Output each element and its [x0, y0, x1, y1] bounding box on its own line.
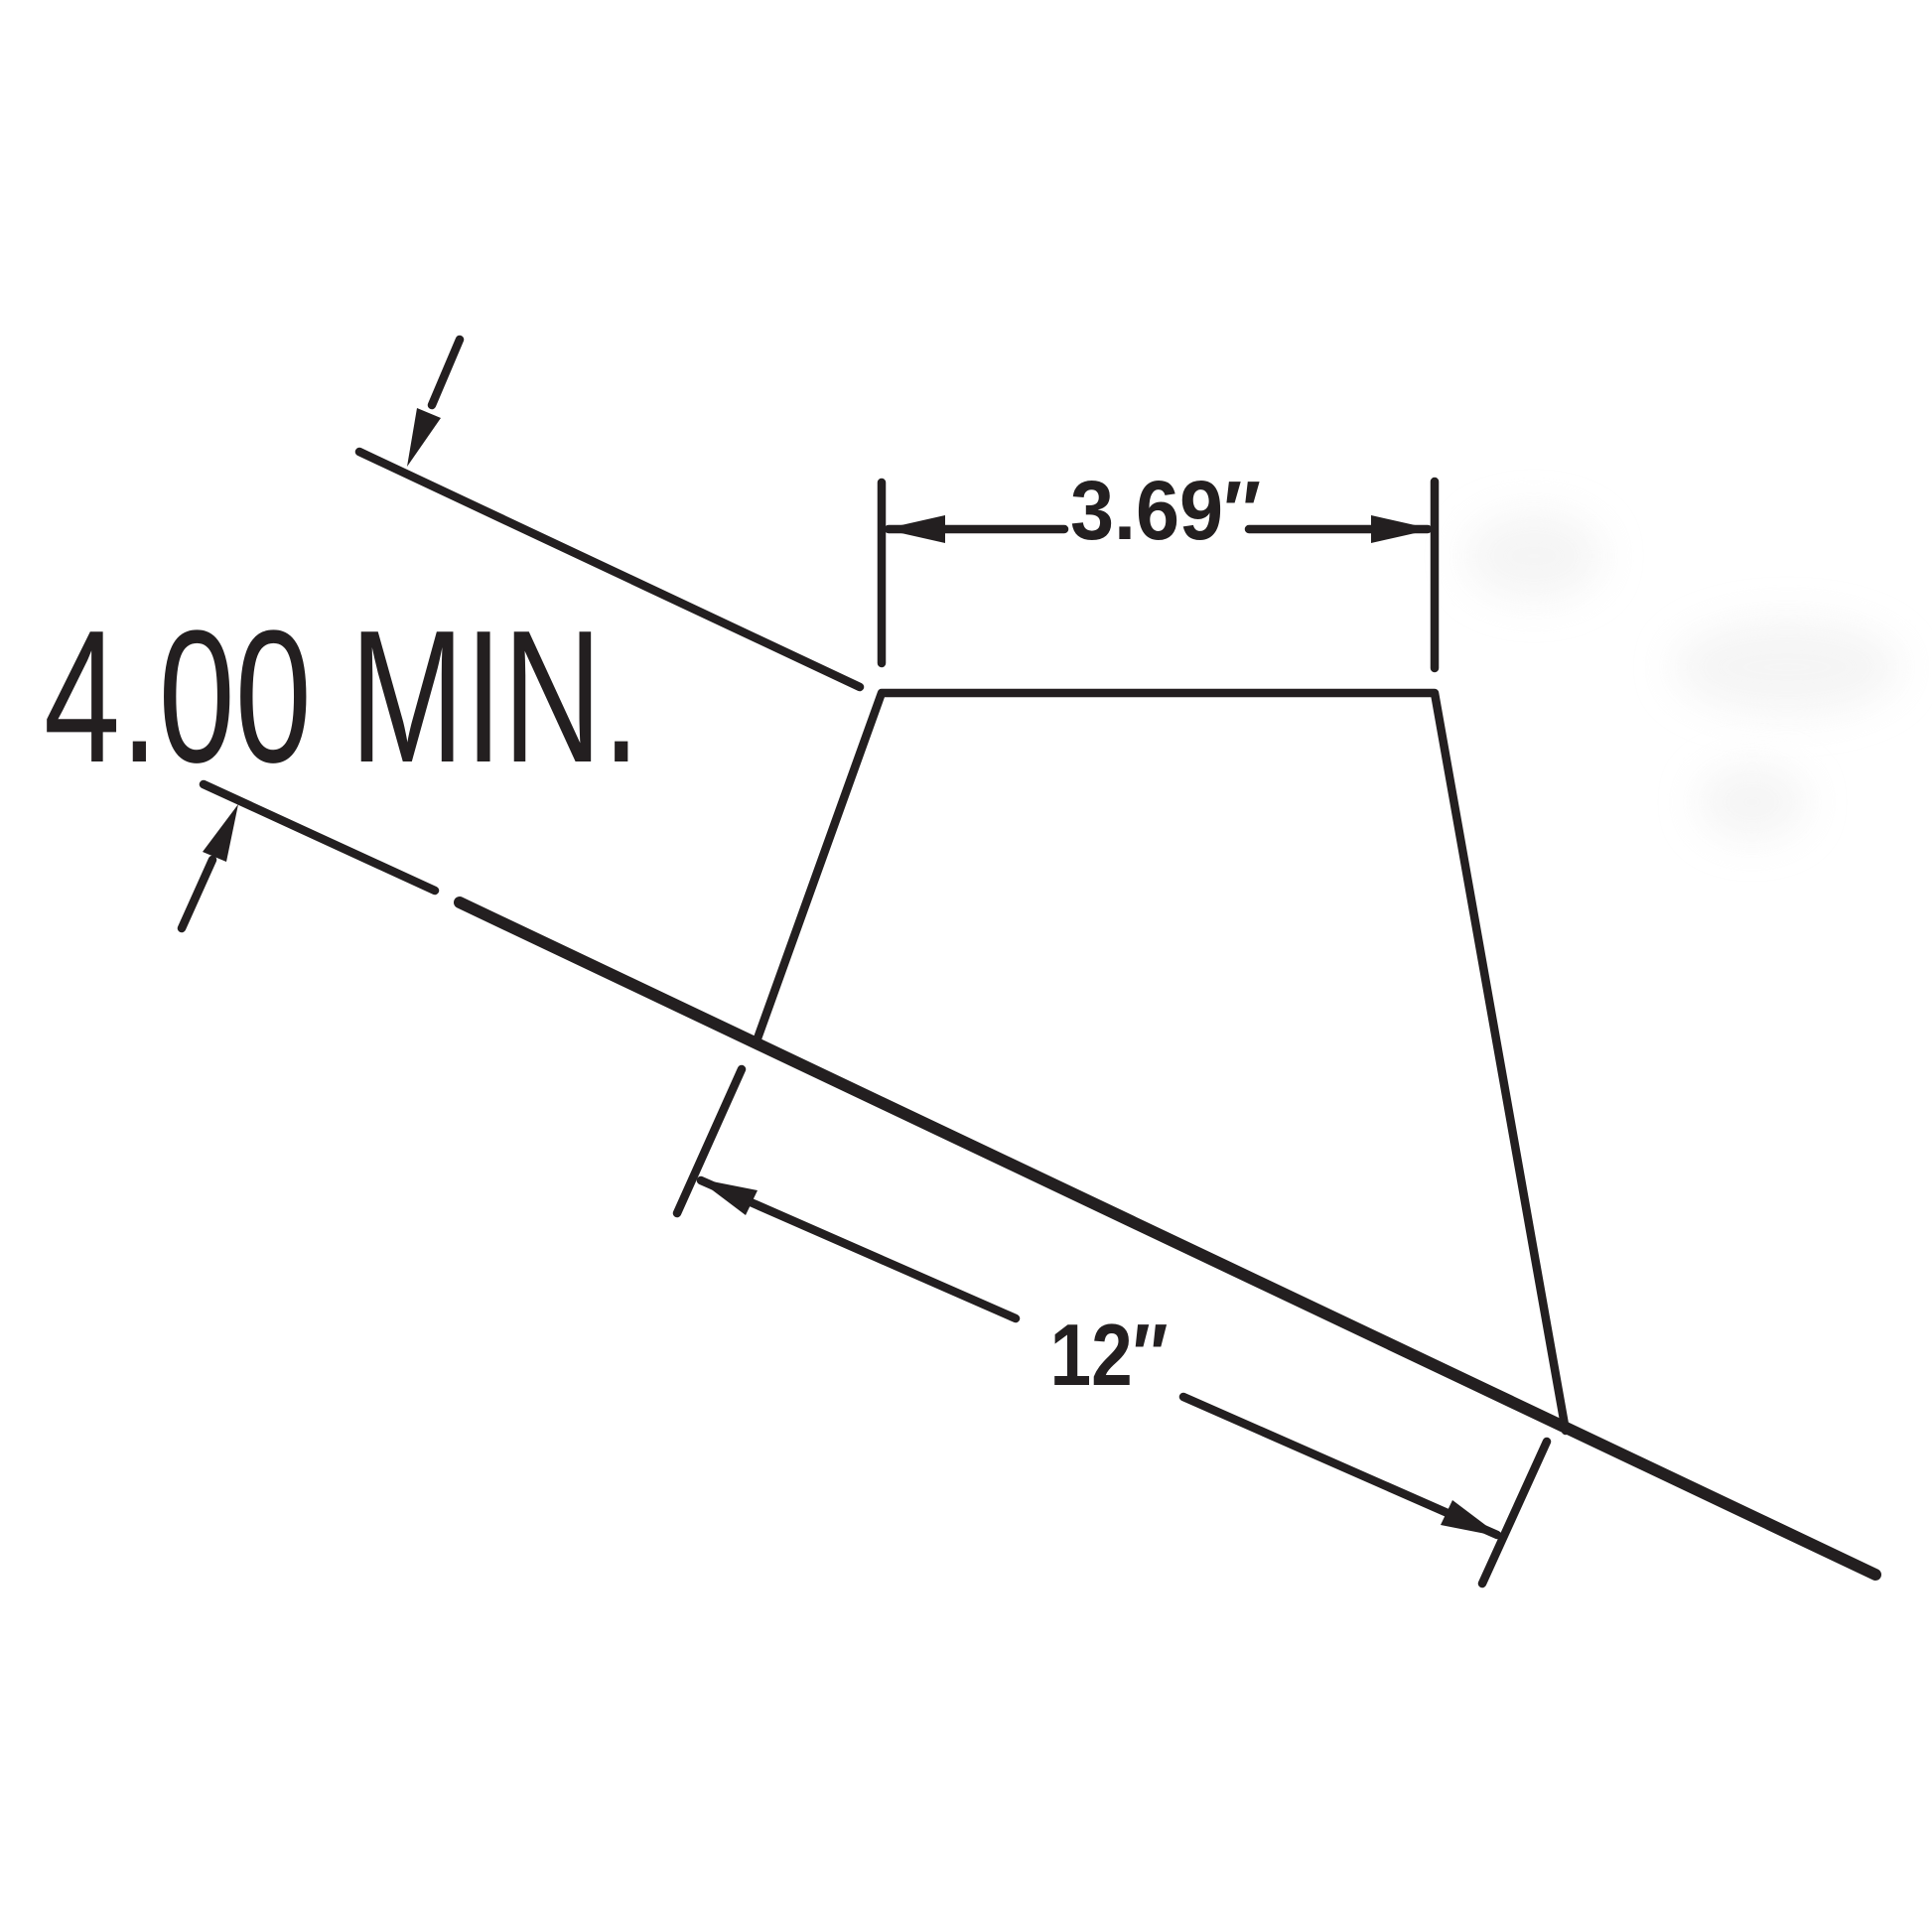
bottom-length-arrowhead-left-icon	[697, 1178, 758, 1215]
min-clearance-dimension: 4.00 MIN.	[44, 340, 1875, 1575]
scan-artifact	[1698, 764, 1807, 840]
drawing-canvas: 4.00 MIN. 3.69″ 12″	[0, 0, 1932, 1932]
lower-leader-arrow	[182, 804, 238, 928]
scan-artifact	[1673, 620, 1901, 715]
lower-leader-arrow-shaft	[182, 860, 212, 928]
technical-diagram: 4.00 MIN. 3.69″ 12″	[0, 0, 1932, 1932]
bottom-length-dimension: 12″	[677, 1069, 1547, 1584]
bottom-length-label: 12″	[1050, 1306, 1169, 1404]
upper-leader-arrowhead-icon	[407, 408, 441, 467]
top-width-dimension: 3.69″	[882, 464, 1435, 668]
bottom-length-arrowhead-right-icon	[1441, 1500, 1501, 1537]
top-width-arrowhead-left-icon	[884, 515, 945, 543]
top-width-arrowhead-right-icon	[1371, 515, 1433, 543]
scan-artifacts	[1464, 511, 1901, 840]
bottom-length-extension-tick-right	[1482, 1442, 1547, 1584]
upper-leader-arrow-shaft	[432, 340, 460, 405]
top-width-label: 3.69″	[1070, 464, 1261, 557]
lower-leader-arrowhead-icon	[203, 804, 238, 862]
upper-leader-arrow	[407, 340, 460, 467]
scan-artifact	[1464, 511, 1603, 601]
min-clearance-label: 4.00 MIN.	[44, 592, 640, 802]
lower-surface-line-segment-2	[460, 902, 1875, 1575]
